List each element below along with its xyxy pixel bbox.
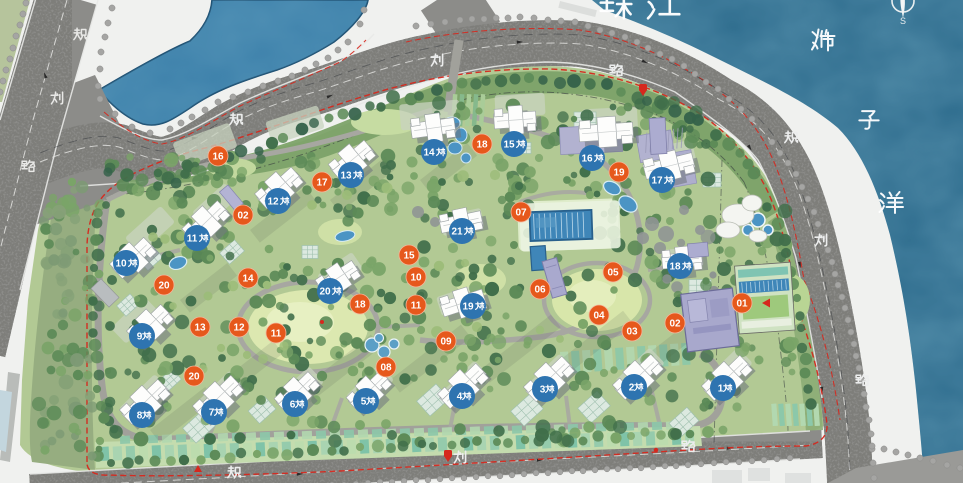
- svg-text:S: S: [900, 16, 906, 26]
- svg-text:3: 3: [540, 384, 546, 395]
- svg-text:16: 16: [212, 152, 224, 163]
- svg-text:17: 17: [316, 178, 328, 189]
- svg-text:04: 04: [593, 311, 605, 322]
- svg-text:16: 16: [581, 153, 593, 164]
- svg-text:06: 06: [534, 285, 546, 296]
- svg-text:05: 05: [607, 268, 619, 279]
- svg-text:15: 15: [403, 251, 415, 262]
- svg-text:02: 02: [669, 319, 681, 330]
- svg-text:18: 18: [354, 300, 366, 311]
- svg-text:13: 13: [340, 170, 352, 181]
- svg-text:21: 21: [451, 226, 463, 237]
- svg-text:19: 19: [462, 301, 474, 312]
- svg-text:2: 2: [629, 382, 635, 393]
- svg-text:17: 17: [651, 175, 663, 186]
- svg-text:12: 12: [267, 196, 279, 207]
- svg-text:01: 01: [736, 299, 748, 310]
- svg-text:8: 8: [137, 410, 143, 421]
- svg-text:07: 07: [515, 208, 527, 219]
- svg-text:9: 9: [137, 331, 143, 342]
- svg-text:13: 13: [194, 323, 206, 334]
- svg-text:1: 1: [718, 383, 724, 394]
- svg-text:02: 02: [237, 211, 249, 222]
- svg-text:20: 20: [158, 281, 170, 292]
- svg-text:18: 18: [476, 140, 488, 151]
- svg-text:10: 10: [115, 258, 127, 269]
- svg-text:20: 20: [188, 372, 200, 383]
- svg-text:19: 19: [613, 168, 625, 179]
- svg-text:7: 7: [209, 407, 215, 418]
- svg-text:4: 4: [457, 391, 463, 402]
- svg-text:11: 11: [187, 233, 198, 244]
- svg-text:14: 14: [242, 274, 254, 285]
- svg-text:18: 18: [669, 261, 681, 272]
- svg-text:5: 5: [361, 396, 367, 407]
- svg-text:6: 6: [290, 399, 296, 410]
- svg-text:09: 09: [440, 337, 452, 348]
- svg-text:03: 03: [626, 327, 638, 338]
- svg-text:12: 12: [233, 323, 245, 334]
- svg-text:08: 08: [380, 363, 392, 374]
- svg-text:20: 20: [319, 286, 331, 297]
- svg-text:14: 14: [423, 147, 435, 158]
- svg-text:10: 10: [410, 273, 422, 284]
- svg-text:11: 11: [411, 301, 422, 312]
- svg-text:11: 11: [271, 329, 282, 340]
- svg-text:15: 15: [503, 139, 515, 150]
